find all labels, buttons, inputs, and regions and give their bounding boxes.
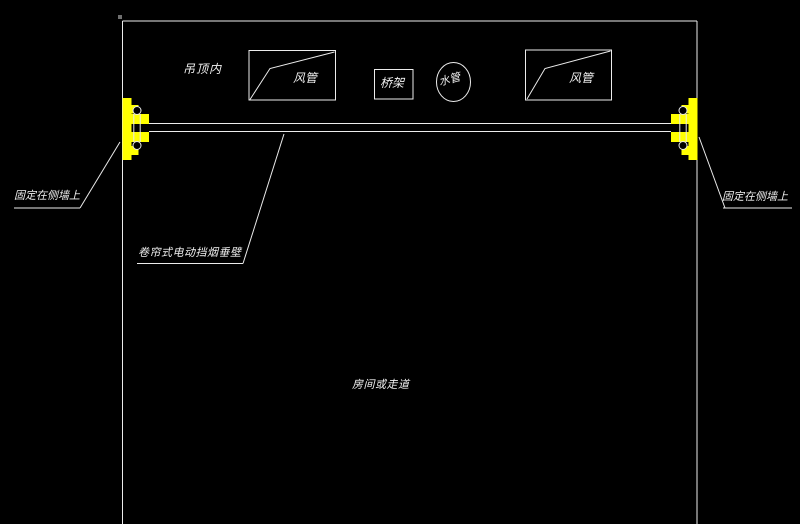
cable-tray-label: 桥架	[380, 76, 404, 91]
fixed-on-wall-label-left: 固定在侧墙上	[14, 190, 80, 204]
right-bracket-bolt-icon	[679, 107, 687, 150]
fixed-on-wall-label-right: 固定在侧墙上	[722, 191, 788, 205]
smoke-barrier-label: 卷帘式电动挡烟垂壁	[138, 247, 242, 261]
air-duct-label-right: 风管	[569, 71, 593, 86]
room-or-corridor-label: 房间或走道	[352, 379, 410, 393]
cad-drawing-canvas: 吊顶内 风管 桥架 水管 风管 固定在侧墙上 固定在侧墙上 卷帘式电动挡烟垂壁 …	[0, 0, 800, 524]
right-bracket-bar	[689, 98, 698, 160]
fixed-left-leader-line	[80, 142, 120, 208]
left-bracket-bar	[123, 98, 132, 160]
leader-smoke-barrier	[137, 134, 284, 264]
air-duct-label-left: 风管	[293, 71, 317, 86]
smoke-barrier-leader-line	[243, 134, 284, 264]
left-bracket-bolt-icon	[133, 107, 141, 150]
ceiling-zone-label: 吊顶内	[183, 62, 222, 77]
corner-grip-point	[118, 15, 122, 19]
